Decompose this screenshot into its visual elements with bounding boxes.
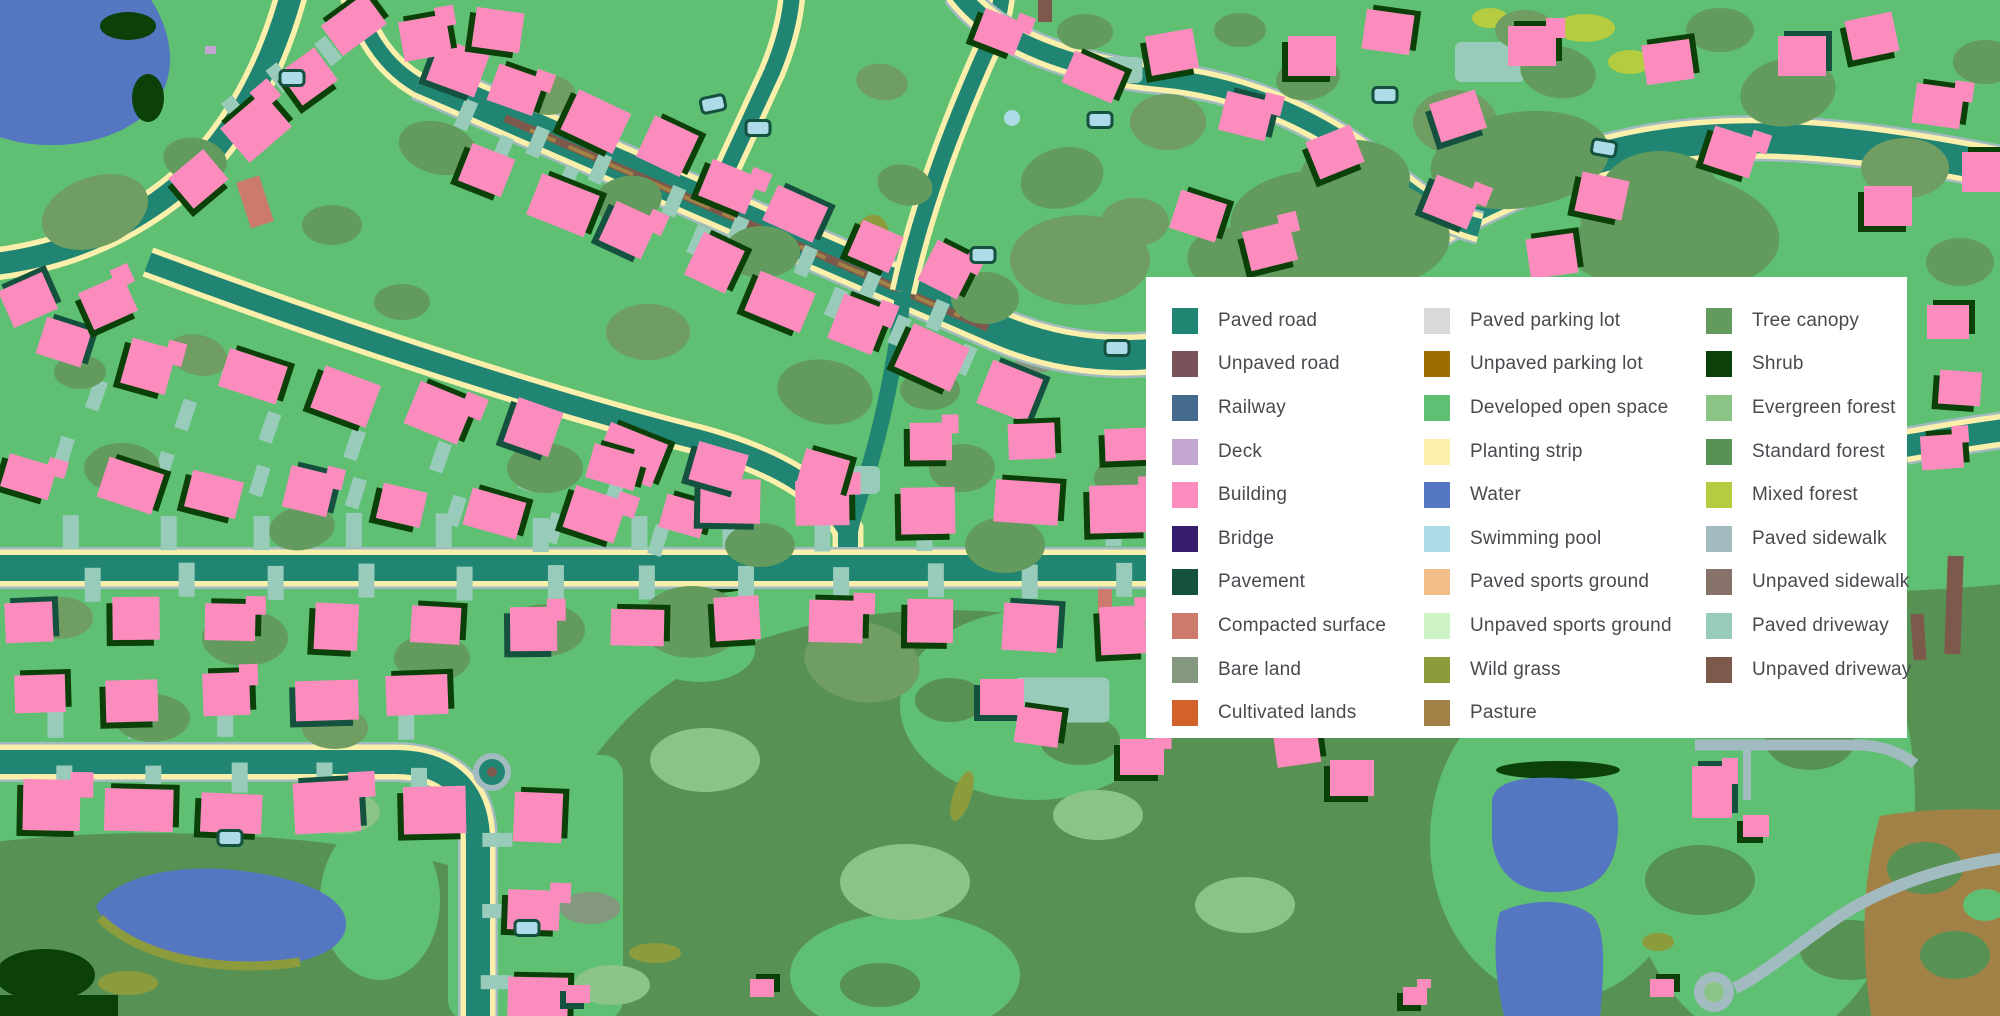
legend-color-swatch: [1706, 482, 1732, 508]
map-legend: Paved road Unpaved road Railway Deck Bui…: [1146, 277, 1907, 738]
legend-item-label: Paved sports ground: [1470, 571, 1649, 593]
legend-item: Shrub: [1706, 343, 1906, 387]
legend-item-label: Cultivated lands: [1218, 702, 1356, 724]
legend-color-swatch: [1706, 657, 1732, 683]
legend-color-swatch: [1172, 613, 1198, 639]
legend-color-swatch: [1424, 482, 1450, 508]
legend-color-swatch: [1424, 439, 1450, 465]
legend-item-label: Bridge: [1218, 528, 1274, 550]
legend-color-swatch: [1172, 482, 1198, 508]
legend-item-label: Building: [1218, 484, 1287, 506]
legend-column-2: Paved parking lot Unpaved parking lot De…: [1424, 299, 1706, 738]
legend-color-swatch: [1172, 657, 1198, 683]
legend-item: Paved sports ground: [1424, 561, 1706, 605]
legend-item-label: Swimming pool: [1470, 528, 1601, 550]
legend-item-label: Unpaved sidewalk: [1752, 571, 1909, 593]
legend-color-swatch: [1706, 351, 1732, 377]
legend-color-swatch: [1706, 569, 1732, 595]
legend-color-swatch: [1424, 395, 1450, 421]
legend-color-swatch: [1172, 526, 1198, 552]
legend-color-swatch: [1172, 700, 1198, 726]
legend-item-label: Paved sidewalk: [1752, 528, 1887, 550]
legend-item: Deck: [1172, 430, 1424, 474]
legend-item: Pavement: [1172, 561, 1424, 605]
legend-item: Railway: [1172, 386, 1424, 430]
legend-item: Cultivated lands: [1172, 691, 1424, 735]
legend-column-1: Paved road Unpaved road Railway Deck Bui…: [1172, 299, 1424, 738]
legend-column-3: Tree canopy Shrub Evergreen forest Stand…: [1706, 299, 1906, 738]
legend-item-label: Shrub: [1752, 353, 1804, 375]
legend-item: Unpaved sports ground: [1424, 604, 1706, 648]
legend-item-label: Evergreen forest: [1752, 397, 1896, 419]
legend-color-swatch: [1172, 395, 1198, 421]
legend-item: Paved parking lot: [1424, 299, 1706, 343]
legend-item: Developed open space: [1424, 386, 1706, 430]
legend-item-label: Paved road: [1218, 310, 1317, 332]
legend-color-swatch: [1706, 439, 1732, 465]
legend-item: Wild grass: [1424, 648, 1706, 692]
legend-item: Tree canopy: [1706, 299, 1906, 343]
legend-color-swatch: [1706, 613, 1732, 639]
legend-item-label: Unpaved parking lot: [1470, 353, 1643, 375]
land-cover-viewer: Paved road Unpaved road Railway Deck Bui…: [0, 0, 2000, 1016]
legend-item-label: Tree canopy: [1752, 310, 1859, 332]
legend-color-swatch: [1424, 613, 1450, 639]
legend-item-label: Water: [1470, 484, 1521, 506]
legend-item-label: Pavement: [1218, 571, 1305, 593]
legend-item-label: Unpaved road: [1218, 353, 1340, 375]
legend-item: Unpaved road: [1172, 343, 1424, 387]
legend-item: Bare land: [1172, 648, 1424, 692]
legend-item-label: Standard forest: [1752, 441, 1885, 463]
legend-item-label: Mixed forest: [1752, 484, 1858, 506]
legend-item-label: Paved driveway: [1752, 615, 1889, 637]
legend-item: Mixed forest: [1706, 473, 1906, 517]
legend-color-swatch: [1424, 700, 1450, 726]
legend-item: Paved road: [1172, 299, 1424, 343]
legend-color-swatch: [1424, 351, 1450, 377]
legend-item: Standard forest: [1706, 430, 1906, 474]
legend-item: Compacted surface: [1172, 604, 1424, 648]
legend-item-label: Unpaved sports ground: [1470, 615, 1672, 637]
legend-item-label: Compacted surface: [1218, 615, 1386, 637]
legend-color-swatch: [1424, 526, 1450, 552]
legend-color-swatch: [1172, 439, 1198, 465]
legend-item: Unpaved driveway: [1706, 648, 1906, 692]
legend-color-swatch: [1706, 395, 1732, 421]
legend-color-swatch: [1424, 569, 1450, 595]
legend-item-label: Pasture: [1470, 702, 1537, 724]
legend-item: Pasture: [1424, 691, 1706, 735]
legend-color-swatch: [1172, 351, 1198, 377]
legend-item-label: Railway: [1218, 397, 1286, 419]
legend-item: Swimming pool: [1424, 517, 1706, 561]
legend-item: Building: [1172, 473, 1424, 517]
legend-item: Evergreen forest: [1706, 386, 1906, 430]
legend-item: Unpaved parking lot: [1424, 343, 1706, 387]
legend-item-label: Developed open space: [1470, 397, 1668, 419]
legend-item-label: Unpaved driveway: [1752, 659, 1912, 681]
legend-item-label: Wild grass: [1470, 659, 1561, 681]
legend-item: Planting strip: [1424, 430, 1706, 474]
legend-item-label: Deck: [1218, 441, 1262, 463]
legend-item-label: Bare land: [1218, 659, 1301, 681]
legend-item: Unpaved sidewalk: [1706, 561, 1906, 605]
legend-item: Paved driveway: [1706, 604, 1906, 648]
legend-item: Paved sidewalk: [1706, 517, 1906, 561]
legend-item: Bridge: [1172, 517, 1424, 561]
legend-color-swatch: [1706, 526, 1732, 552]
legend-color-swatch: [1172, 569, 1198, 595]
legend-item-label: Paved parking lot: [1470, 310, 1620, 332]
legend-color-swatch: [1424, 308, 1450, 334]
legend-color-swatch: [1424, 657, 1450, 683]
legend-item-label: Planting strip: [1470, 441, 1583, 463]
legend-item: Water: [1424, 473, 1706, 517]
legend-color-swatch: [1172, 308, 1198, 334]
legend-color-swatch: [1706, 308, 1732, 334]
